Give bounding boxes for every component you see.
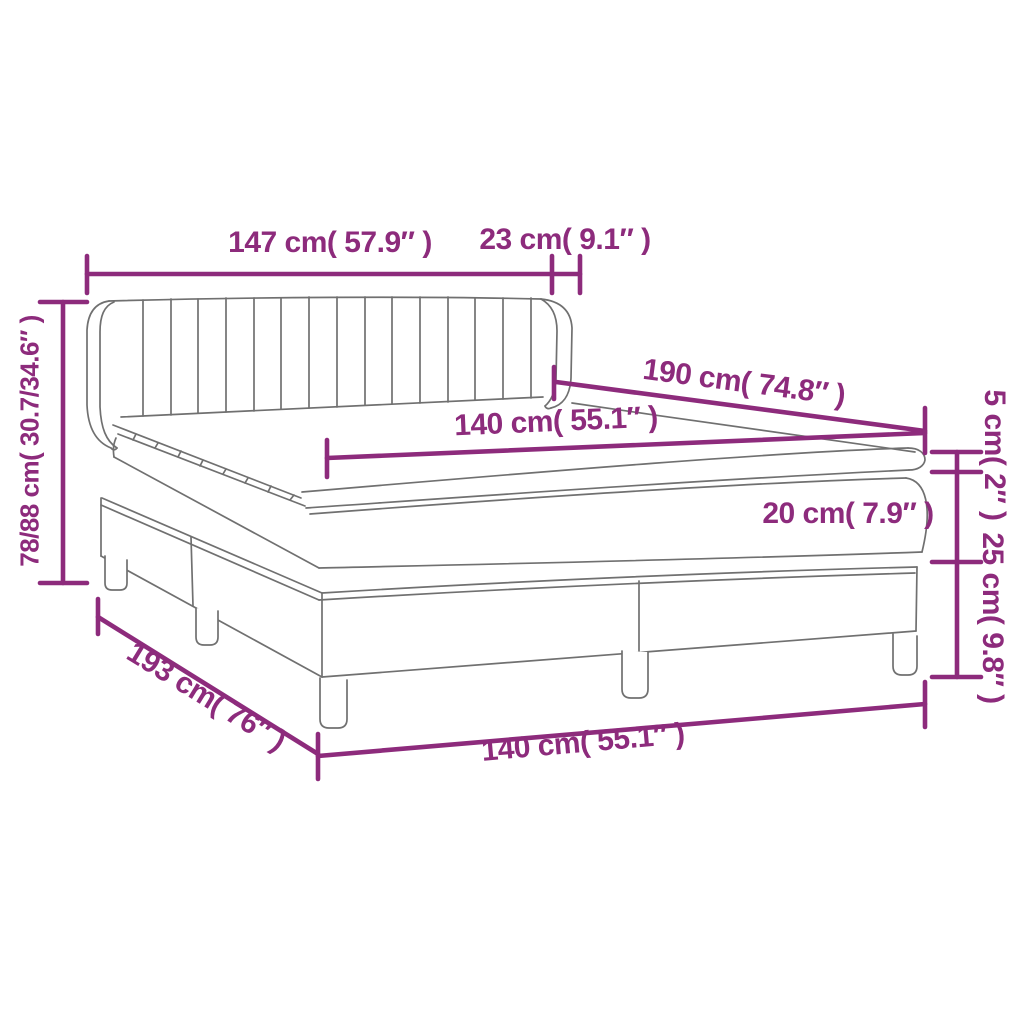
base-left-top-edge-piping <box>101 505 319 600</box>
label-mattress-thickness: 20 cm( 7.9″ ) <box>762 497 933 531</box>
base-front-top-edge <box>322 567 917 593</box>
mattress-left-piping-bottom <box>118 434 305 506</box>
mattress-piping-hatches <box>133 434 294 500</box>
base-left-seam <box>191 537 193 606</box>
mattress-left-bottom-edge <box>114 457 319 568</box>
leg-front-right <box>893 634 917 675</box>
base-front-bottom-edge <box>322 631 916 677</box>
dim-right-stack-line <box>932 452 981 677</box>
leg-back-left <box>105 556 127 590</box>
base-left-top-edge <box>102 498 322 593</box>
base-front-right-corner <box>916 567 917 631</box>
headboard-left-wing <box>87 301 117 450</box>
label-headboard-width: 147 cm( 57.9″ ) <box>228 226 432 260</box>
label-topper-thickness: 5 cm( 2″ ) <box>977 389 1011 520</box>
leg-front-left <box>320 678 347 728</box>
label-headboard-side-depth: 23 cm( 9.1″ ) <box>479 223 650 257</box>
dim-overall-height-line <box>40 302 87 583</box>
label-overall-height: 78/88 cm( 30.7/34.6″ ) <box>15 315 46 567</box>
dim-headboard-width-line <box>87 256 580 293</box>
dimension-diagram: 147 cm( 57.9″ ) 23 cm( 9.1″ ) 78/88 cm( … <box>0 0 1024 1024</box>
leg-front-center <box>622 651 648 698</box>
leg-left-middle <box>196 608 218 645</box>
headboard-right-wing <box>541 299 572 409</box>
headboard-channels <box>143 297 531 416</box>
headboard-top-edge <box>109 297 541 301</box>
label-base-height: 25 cm( 9.8″ ) <box>975 532 1009 703</box>
mattress-front-bottom-edge <box>319 552 922 568</box>
mattress-left-piping-top <box>113 425 301 498</box>
